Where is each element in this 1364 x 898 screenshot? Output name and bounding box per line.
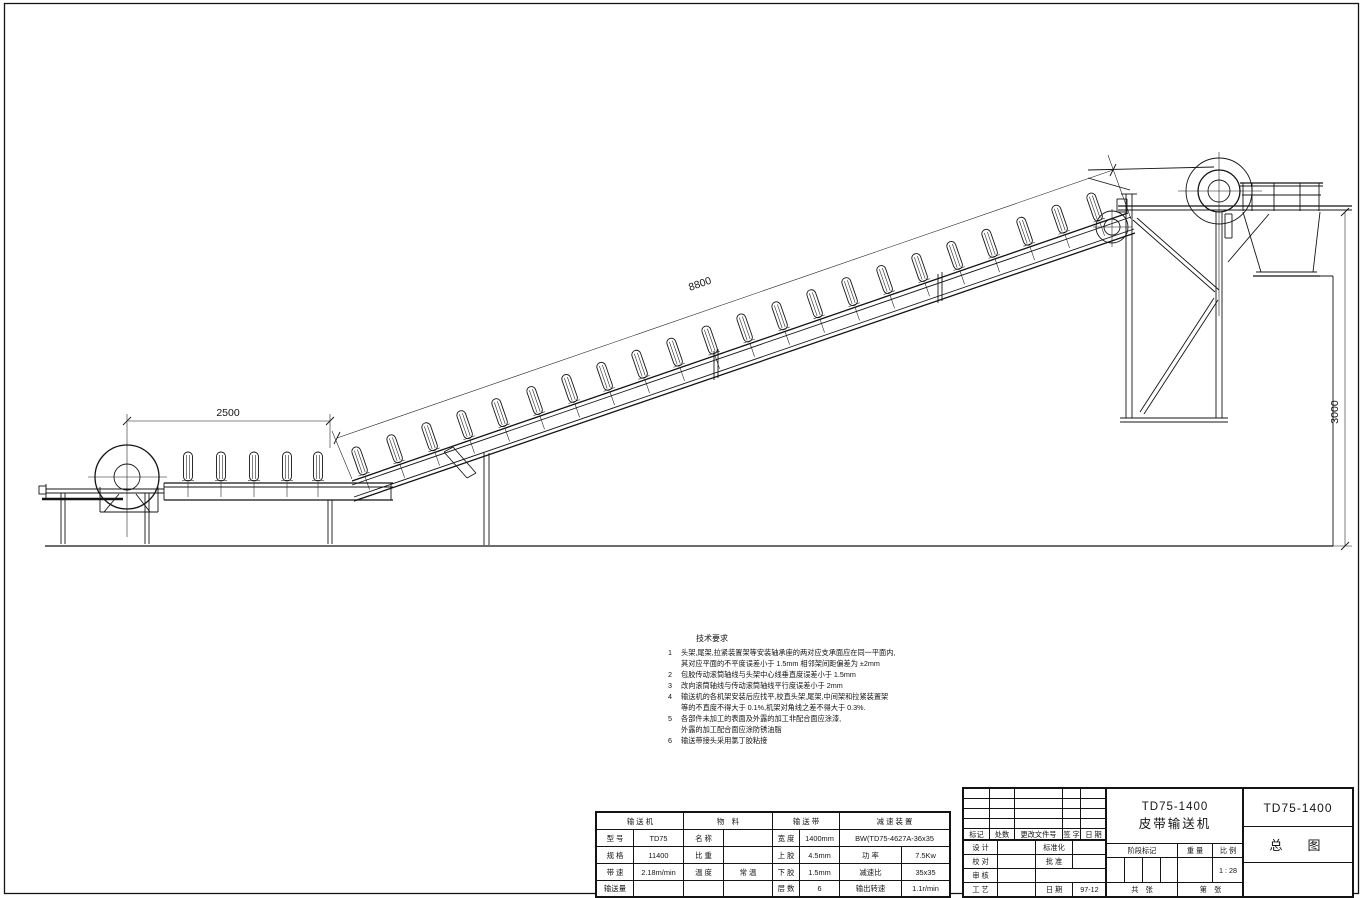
scale-label: 比 例 [1213, 844, 1244, 858]
note-text: 其对应平面的不平度误差小于 1.5mm 相邻架间距偏差为 ±2mm [681, 658, 880, 669]
rev-cell [1063, 819, 1081, 829]
dim-3000-label: 3000 [1329, 400, 1341, 424]
title-block-middle: TD75-1400 皮带输送机 阶段标记 重 量 比 例 1 : 28 共 张 … [1106, 788, 1244, 897]
header-reducer: 减 速 装 置 [840, 813, 950, 830]
rev-cell [1063, 789, 1081, 799]
note-line: 3改向滚筒轴线与传动滚筒轴线平行度误差小于 2mm [668, 680, 900, 691]
label-belt-width: 宽 度 [773, 830, 800, 847]
label-bottom-cover: 下 胶 [773, 864, 800, 881]
sheets-page: 第 张 [1178, 883, 1244, 897]
note-text: 各部件未加工的表面及外露的加工非配合面应涂漆, [681, 713, 841, 724]
role-approve-sign [1073, 855, 1107, 869]
rev-cell [990, 789, 1015, 799]
label-power: 功 率 [840, 847, 902, 864]
role-process: 工 艺 [964, 883, 998, 897]
note-line: 等的不直度不得大于 0.1%,机架对角线之差不得大于 0.3%. [668, 702, 900, 713]
stage-cell [1125, 858, 1143, 883]
value-material-name [724, 830, 773, 847]
note-line: 1头架,尾架,拉紧装置架等安装轴承座的两对应支承面应在同一平面内, [668, 647, 900, 658]
stage-cell [1143, 858, 1161, 883]
note-number: 3 [668, 680, 681, 691]
stage-cell [1107, 858, 1125, 883]
label-temp: 温 度 [684, 864, 724, 881]
value-reducer-model: BW(TD75-4627A-36x35 [840, 830, 950, 847]
scale-value: 1 : 28 [1213, 858, 1244, 883]
head-section [1088, 152, 1352, 422]
rev-cell [990, 819, 1015, 829]
note-number: 4 [668, 691, 681, 702]
value-temp: 常 温 [724, 864, 773, 881]
role-standardize: 标准化 [1036, 841, 1073, 855]
rev-cell [1081, 789, 1107, 799]
value-belt-width: 1400mm [800, 830, 840, 847]
rev-cell [964, 789, 990, 799]
label-plies: 层 数 [773, 881, 800, 897]
cell-empty [684, 881, 724, 897]
product-name: 皮带输送机 [1107, 813, 1243, 832]
platform-railing [1240, 183, 1323, 211]
rev-cell [990, 809, 1015, 819]
parameter-table: 输 送 机 物 料 输 送 带 减 速 装 置 型 号 TD75 名 称 宽 度… [596, 812, 950, 897]
label-capacity: 输送量 [597, 881, 634, 897]
note-number: 5 [668, 713, 681, 724]
label-model: 型 号 [597, 830, 634, 847]
drawing-model: TD75-1400 [1244, 789, 1353, 827]
dim-8800-label: 8800 [687, 275, 713, 294]
rev-cell [1015, 819, 1063, 829]
value-capacity [634, 881, 684, 897]
header-material: 物 料 [684, 813, 773, 830]
product-title-cell: TD75-1400 皮带输送机 [1107, 789, 1244, 844]
value-ratio: 35x35 [902, 864, 950, 881]
header-conveyor: 输 送 机 [597, 813, 684, 830]
value-plies: 6 [800, 881, 840, 897]
role-approve: 批 准 [1036, 855, 1073, 869]
note-line: 其对应平面的不平度误差小于 1.5mm 相邻架间距偏差为 ±2mm [668, 658, 900, 669]
role-date-value: 97-12 [1073, 883, 1107, 897]
dimension-2500: 2500 [123, 407, 334, 448]
role-audit: 审 核 [964, 869, 998, 883]
value-gravity [724, 847, 773, 864]
note-text: 等的不直度不得大于 0.1%,机架对角线之差不得大于 0.3%. [681, 702, 866, 713]
label-top-cover: 上 胶 [773, 847, 800, 864]
title-block-right: TD75-1400 总 图 [1243, 788, 1353, 897]
value-top-cover: 4.5mm [800, 847, 840, 864]
note-number: 2 [668, 669, 681, 680]
incline-truss [352, 213, 1135, 545]
note-line: 外露的加工配合面应涂防锈油脂 [668, 724, 900, 735]
weight-value [1178, 858, 1213, 883]
note-text: 头架,尾架,拉紧装置架等安装轴承座的两对应支承面应在同一平面内, [681, 647, 895, 658]
note-number [668, 702, 681, 713]
rev-cell [964, 809, 990, 819]
role-design-sign [998, 841, 1036, 855]
tail-pulley [88, 414, 167, 537]
note-line: 4输送机的各机架安装后应找平,校直头架,尾架,中间架和拉紧装置架 [668, 691, 900, 702]
rev-cell [964, 819, 990, 829]
label-material-name: 名 称 [684, 830, 724, 847]
drawing-sheet: 2500 8800 3000 技术要求 1头架,尾架,拉紧装置架等安装轴承座的两… [0, 0, 1364, 898]
sheets-total: 共 张 [1107, 883, 1178, 897]
note-line: 6输送带接头采用氯丁胶粘接 [668, 735, 900, 746]
rev-header-doc: 更改文件号 [1015, 829, 1063, 841]
value-spec: 11400 [634, 847, 684, 864]
sheet-border-frame [5, 4, 1359, 894]
rev-cell [1081, 799, 1107, 809]
conveyor-general-drawing: 2500 8800 3000 [0, 0, 1364, 898]
roles-table: 设 计 标准化 校 对 批 准 审 核 工 艺 日 期 97-12 [963, 840, 1107, 897]
rev-cell [1015, 789, 1063, 799]
value-output-speed: 1.1r/min [902, 881, 950, 897]
note-line: 2包胶传动滚筒轴线与头架中心线垂直度误差小于 1.5mm [668, 669, 900, 680]
intermediate-leg [444, 447, 489, 545]
rev-cell [990, 799, 1015, 809]
dimension-3000: 3000 [1329, 208, 1349, 550]
rev-cell [1063, 809, 1081, 819]
label-speed: 带 速 [597, 864, 634, 881]
cell-empty [724, 881, 773, 897]
rev-header-count: 处数 [990, 829, 1015, 841]
rev-cell [1015, 809, 1063, 819]
role-process-sign [998, 883, 1036, 897]
horizontal-frame [164, 483, 393, 544]
stage-cell [1161, 858, 1178, 883]
cell-empty [1036, 869, 1107, 883]
label-ratio: 减速比 [840, 864, 902, 881]
role-date-label: 日 期 [1036, 883, 1073, 897]
technical-notes-title: 技术要求 [696, 633, 900, 644]
note-line: 5各部件未加工的表面及外露的加工非配合面应涂漆, [668, 713, 900, 724]
note-text: 包胶传动滚筒轴线与头架中心线垂直度误差小于 1.5mm [681, 669, 856, 680]
role-check-sign [998, 855, 1036, 869]
note-text: 改向滚筒轴线与传动滚筒轴线平行度误差小于 2mm [681, 680, 843, 691]
role-check: 校 对 [964, 855, 998, 869]
technical-notes: 技术要求 1头架,尾架,拉紧装置架等安装轴承座的两对应支承面应在同一平面内, 其… [668, 633, 900, 746]
role-audit-sign [998, 869, 1036, 883]
drawing-type: 总 图 [1244, 827, 1353, 863]
note-text: 外露的加工配合面应涂防锈油脂 [681, 724, 782, 735]
tail-section [39, 414, 167, 544]
value-power: 7.5Kw [902, 847, 950, 864]
rev-header-sign: 签 字 [1063, 829, 1081, 841]
stage-mark-label: 阶段标记 [1107, 844, 1178, 858]
value-speed: 2.18m/min [634, 864, 684, 881]
note-number [668, 724, 681, 735]
note-text: 输送带接头采用氯丁胶粘接 [681, 735, 767, 746]
rev-cell [1063, 799, 1081, 809]
note-number [668, 658, 681, 669]
product-model: TD75-1400 [1107, 801, 1243, 813]
rev-header-mark: 标记 [964, 829, 990, 841]
label-spec: 规 格 [597, 847, 634, 864]
cell-empty [1244, 863, 1353, 897]
dim-2500-label: 2500 [216, 407, 240, 419]
role-standardize-sign [1073, 841, 1107, 855]
rev-cell [1015, 799, 1063, 809]
label-gravity: 比 重 [684, 847, 724, 864]
label-output-speed: 输出转速 [840, 881, 902, 897]
dimension-8800: 8800 [332, 155, 1131, 479]
value-model: TD75 [634, 830, 684, 847]
idler-rollers [179, 190, 1113, 497]
value-bottom-cover: 1.5mm [800, 864, 840, 881]
weight-label: 重 量 [1178, 844, 1213, 858]
rev-cell [964, 799, 990, 809]
role-design: 设 计 [964, 841, 998, 855]
discharge-chute [1228, 183, 1333, 546]
note-number: 6 [668, 735, 681, 746]
note-number: 1 [668, 647, 681, 658]
rev-cell [1081, 819, 1107, 829]
header-belt: 输 送 带 [773, 813, 840, 830]
rev-header-date: 日 期 [1081, 829, 1107, 841]
rev-cell [1081, 809, 1107, 819]
revision-table: 标记 处数 更改文件号 签 字 日 期 [963, 788, 1107, 841]
note-text: 输送机的各机架安装后应找平,校直头架,尾架,中间架和拉紧装置架 [681, 691, 888, 702]
